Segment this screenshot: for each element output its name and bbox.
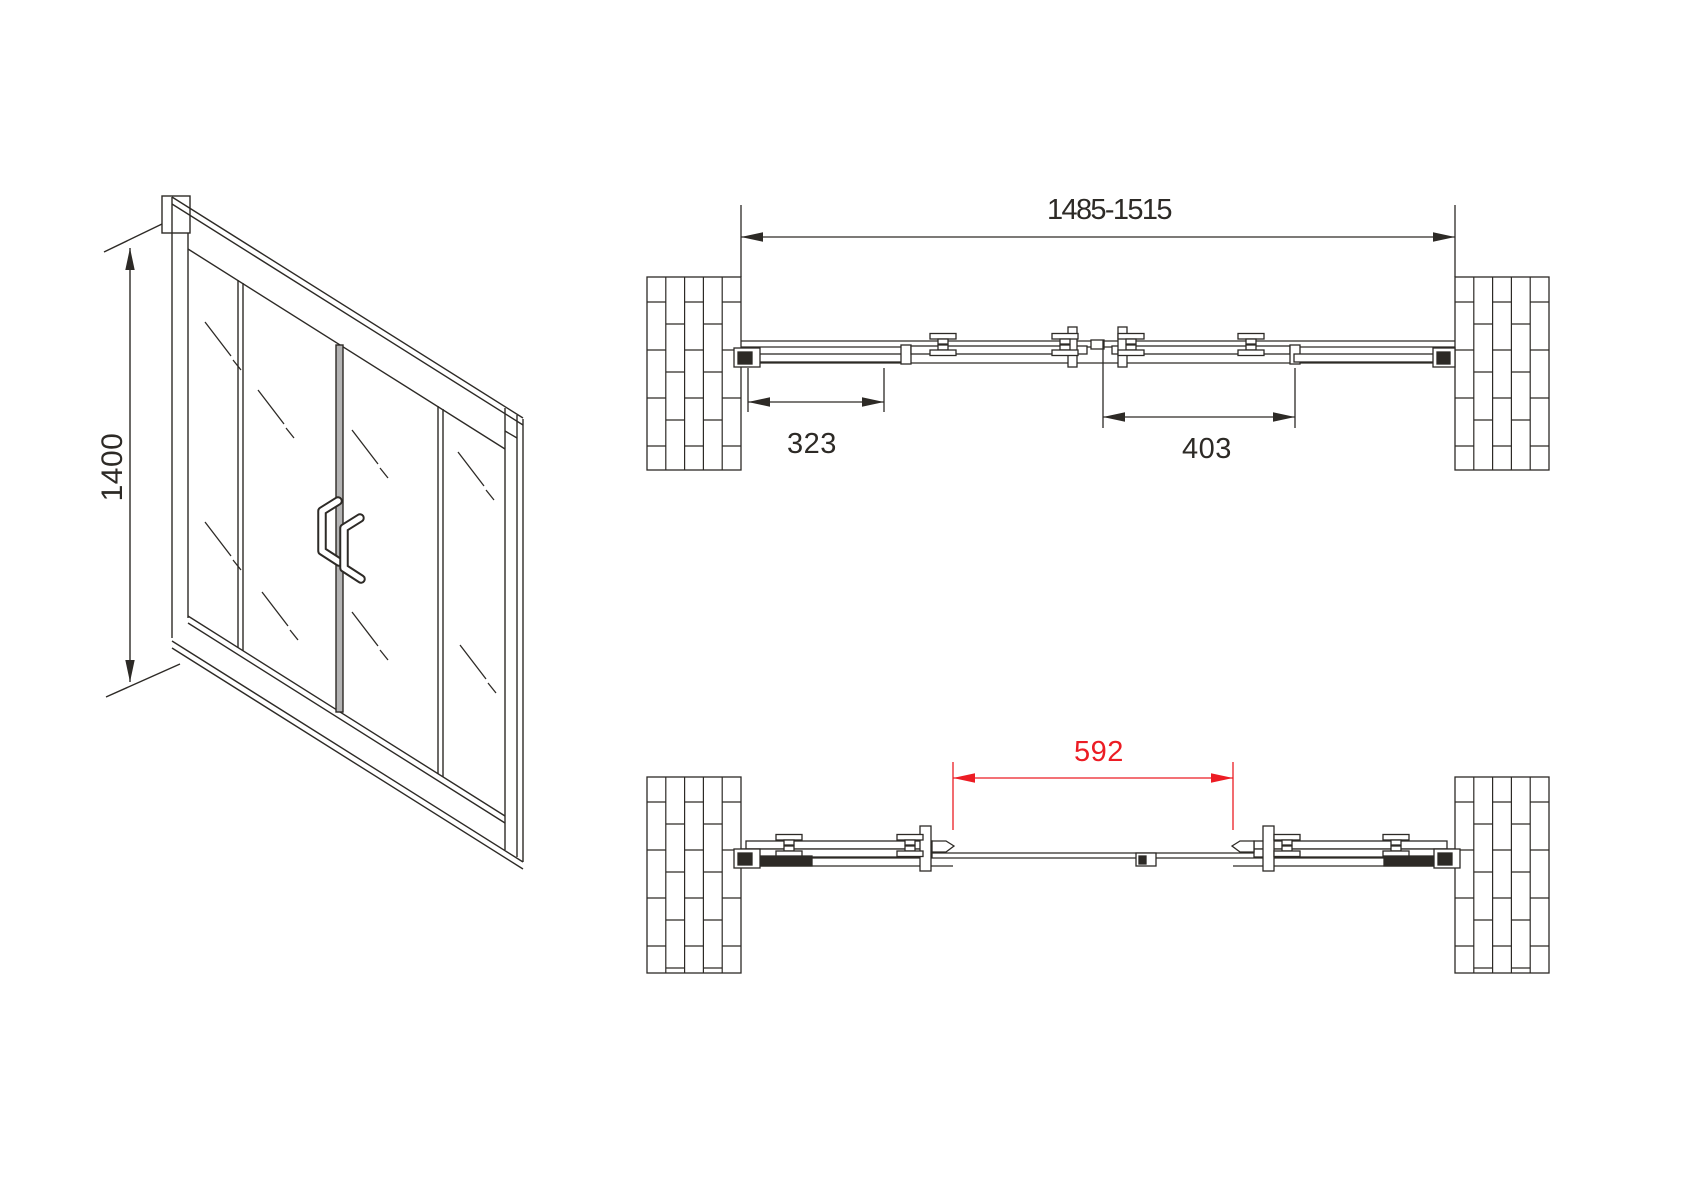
glass-mark — [258, 390, 294, 438]
left-offset-dimension: 323 — [748, 368, 884, 460]
door-edge-seal-left — [932, 841, 954, 852]
roller-assembly-part — [1118, 334, 1144, 340]
glass-shine-marks — [205, 322, 496, 693]
roller-assembly-part — [1391, 840, 1401, 845]
wall-clamp-right-core — [1437, 352, 1450, 364]
bottom-rail-lip — [188, 623, 505, 823]
glass-mark-part — [352, 430, 378, 464]
glass-mark-part — [286, 428, 294, 438]
roller-assembly-part — [1238, 334, 1264, 340]
glass-mark — [262, 592, 298, 640]
roller-assembly-part — [938, 345, 948, 350]
wall-section-right — [1455, 277, 1549, 470]
plan-view-open: 592 — [647, 736, 1549, 973]
arrowhead-right — [1273, 412, 1295, 422]
roller-assembly-part — [1246, 345, 1256, 350]
center-stopper-clip — [1091, 340, 1104, 349]
roller-assembly-part — [1282, 840, 1292, 845]
roller-assembly — [1238, 334, 1264, 356]
glass-mark — [460, 645, 496, 693]
wall-clamp-left-core — [738, 352, 752, 364]
arrowhead-left — [1103, 412, 1125, 422]
overall-width-label: 1485-1515 — [1047, 194, 1173, 226]
arrowhead-left — [953, 773, 975, 783]
bottom-guide-block-left — [758, 856, 812, 866]
glass-mark — [352, 612, 388, 660]
roller-assembly-part — [1052, 334, 1078, 340]
glass-mark — [205, 322, 241, 370]
roller-assembly-part — [1391, 846, 1401, 851]
glass-mark — [352, 430, 388, 478]
roller-assembly-part — [1126, 339, 1136, 344]
arrowhead-left — [748, 397, 770, 407]
glass-mark-part — [486, 490, 494, 500]
arrowhead-up — [125, 248, 134, 270]
extension-line — [104, 224, 162, 252]
roller-assembly — [930, 334, 956, 356]
roller-assembly-part — [905, 840, 915, 845]
roller-assembly-part — [784, 840, 794, 845]
right-offset-label: 403 — [1182, 433, 1232, 465]
glass-mark-part — [380, 650, 388, 660]
glass-mark — [458, 452, 494, 500]
technical-drawing-sheet: 1400 — [0, 0, 1700, 1203]
wall-profile-cap — [162, 196, 190, 233]
glass-mark-part — [380, 468, 388, 478]
wall-section-left-part — [647, 277, 741, 470]
glass-mark — [205, 522, 241, 570]
roller-assembly-part — [930, 334, 956, 340]
roller-assembly-part — [897, 835, 923, 841]
wall-clamp-right-core — [1438, 853, 1452, 865]
height-dimension-label: 1400 — [96, 433, 129, 502]
roller-assembly-part — [784, 846, 794, 851]
glass-mark-part — [233, 360, 241, 370]
top-rail-lip — [172, 204, 523, 425]
door-edge-seal-right — [1232, 841, 1254, 852]
roller-assembly-part — [1126, 345, 1136, 350]
isometric-door-view: 1400 — [96, 196, 523, 869]
wall-section-right — [1455, 777, 1549, 973]
opening-dimension-label: 592 — [1074, 736, 1124, 768]
wall-clamp-left-core — [738, 853, 752, 865]
roller-assembly-part — [938, 339, 948, 344]
roller-assembly-part — [1274, 851, 1300, 857]
top-rail-bottom-edge — [188, 249, 505, 449]
arrowhead-right — [1433, 232, 1455, 242]
wall-section-left — [647, 777, 741, 973]
bottom-guide-block-right — [1384, 856, 1438, 866]
panel-step-bracket — [901, 345, 911, 364]
track-clip-core — [1139, 856, 1146, 864]
right-offset-dimension: 403 — [1103, 340, 1295, 465]
bottom-rail-outer — [172, 648, 523, 869]
door-panel-outer-right — [1294, 354, 1454, 362]
roller-assembly-part — [905, 846, 915, 851]
roller-assembly-part — [1282, 846, 1292, 851]
bottom-rail-face — [172, 641, 523, 862]
left-offset-label: 323 — [787, 428, 837, 460]
roller-assembly-part — [1060, 339, 1070, 344]
wall-section-right-part — [1455, 277, 1549, 470]
top-rail-outer-edge — [172, 197, 523, 418]
guide-plate-left — [920, 826, 931, 871]
roller-assembly-part — [897, 851, 923, 857]
glass-mark-part — [460, 645, 486, 679]
door-panel-outer-left — [747, 354, 907, 362]
roller-assembly-part — [1246, 339, 1256, 344]
glass-mark-part — [258, 390, 284, 424]
glass-mark-part — [233, 560, 241, 570]
wall-section-right-part — [1455, 777, 1549, 973]
glass-mark-part — [290, 630, 298, 640]
roller-assembly-part — [1060, 345, 1070, 350]
glass-mark-part — [352, 612, 378, 646]
extension-line — [106, 664, 180, 697]
overall-width-dimension: 1485-1515 — [741, 194, 1455, 277]
arrowhead-right — [862, 397, 884, 407]
height-dimension: 1400 — [96, 224, 180, 697]
roller-assembly-part — [776, 835, 802, 841]
glass-mark-part — [458, 452, 484, 486]
stacked-panel-upper-left — [746, 841, 932, 849]
roller-assembly-part — [1118, 350, 1144, 356]
guide-plate-right — [1263, 826, 1274, 871]
glass-mark-part — [262, 592, 288, 626]
arrowhead-down — [125, 660, 134, 682]
glass-mark-part — [205, 322, 231, 356]
glass-mark-part — [205, 522, 231, 556]
wall-section-left-part — [647, 777, 741, 973]
roller-assembly-part — [1238, 350, 1264, 356]
bottom-rail-top — [188, 616, 505, 816]
roller-assembly-part — [1383, 835, 1409, 841]
right-cap-edge — [505, 431, 517, 438]
glass-mark-part — [488, 683, 496, 693]
roller-assembly-part — [1274, 835, 1300, 841]
roller-assembly-part — [1052, 350, 1078, 356]
plan-view-closed: 1485-1515 323 — [647, 194, 1549, 470]
shower-door-drawing: 1400 — [0, 0, 1700, 1203]
roller-assembly-part — [930, 350, 956, 356]
opening-dimension: 592 — [953, 736, 1233, 830]
arrowhead-right — [1211, 773, 1233, 783]
wall-section-left — [647, 277, 741, 470]
arrowhead-left — [741, 232, 763, 242]
